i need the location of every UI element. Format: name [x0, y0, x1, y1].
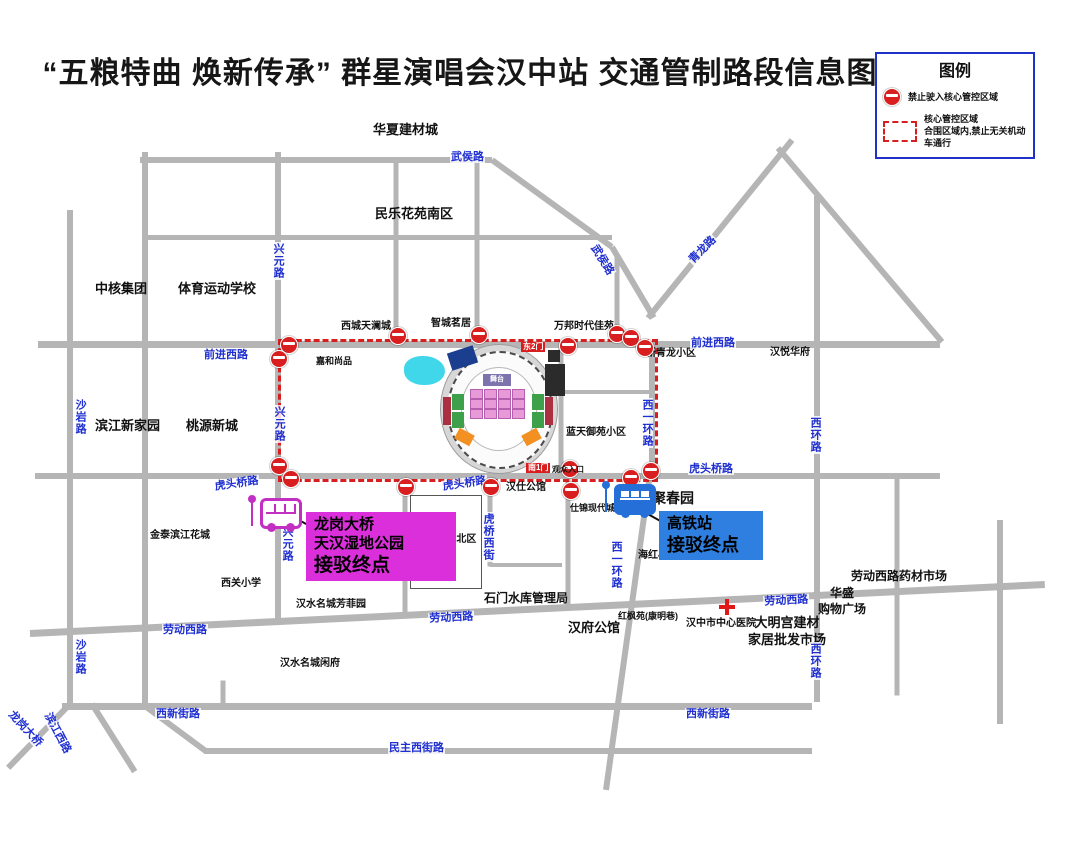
- no-entry-icon: [562, 482, 580, 500]
- bus-windows: [266, 504, 296, 514]
- legend-no-entry-label: 禁止驶入核心管控区域: [908, 91, 998, 103]
- bus-body: [260, 498, 302, 529]
- road-segment: [221, 680, 226, 708]
- road-segment: [67, 210, 73, 706]
- no-entry-icon: [642, 462, 660, 480]
- place-label: 华盛 购物广场: [818, 586, 866, 617]
- road-segment: [394, 162, 399, 344]
- place-label: 中核集团: [95, 281, 147, 298]
- stadium-seating-block: [545, 364, 565, 396]
- road-segment: [776, 146, 945, 344]
- road-label: 劳动西路: [162, 624, 208, 636]
- place-label: 汉府公馆: [568, 620, 620, 637]
- place-label: 嘉和尚品: [316, 356, 352, 368]
- stadium-seating-block: [545, 397, 553, 425]
- road-label: 兴元路: [273, 405, 285, 443]
- gate-south-note: 观众入口: [552, 464, 584, 475]
- no-entry-icon: [636, 339, 654, 357]
- no-entry-icon: [470, 326, 488, 344]
- legend-row-control-zone: 核心管控区域 合围区域内,禁止无关机动车通行: [883, 113, 1027, 149]
- road-label: 西新街路: [685, 708, 731, 720]
- place-label: 劳动西路药材市场: [851, 569, 947, 585]
- bus-stop-pole-icon: [251, 502, 253, 526]
- legend-zone-line2: 合围区域内,禁止无关机动车通行: [924, 126, 1026, 148]
- road-segment: [140, 157, 492, 163]
- stage-label: 舞台: [483, 374, 511, 386]
- bus-stop-pole-icon: [605, 488, 607, 512]
- no-entry-icon: [270, 350, 288, 368]
- no-entry-icon: [883, 88, 901, 106]
- shuttle-terminal-line: 接驳终点: [314, 554, 448, 578]
- wetland-shuttle-bus-icon: [260, 498, 302, 529]
- shuttle-terminal-line: 接驳终点: [667, 534, 755, 557]
- road-label: 前进西路: [203, 349, 249, 361]
- stadium-seating-block: [532, 394, 544, 410]
- road-label: 西一环路: [641, 398, 653, 448]
- stadium-seating-block: [443, 397, 451, 425]
- road-label: 兴元路: [272, 242, 284, 280]
- stadium-seating-block: [470, 399, 483, 409]
- bus-wheel: [640, 509, 649, 518]
- shuttle-terminal-line: 龙岗大桥: [314, 516, 448, 535]
- stadium-seating-block: [512, 399, 525, 409]
- stadium-seating-block: [484, 409, 497, 419]
- road-label: 青龙路: [686, 233, 719, 266]
- stadium-seating-block: [470, 409, 483, 419]
- traffic-control-infographic: “五粮特曲 焕新传承” 群星演唱会汉中站 交通管制路段信息图 图例 禁止驶入核心…: [0, 0, 1080, 841]
- stadium-seating-block: [452, 394, 464, 410]
- place-label: 金泰滨江花城: [150, 529, 210, 542]
- road-label: 西环路: [809, 642, 821, 680]
- stadium-seating-block: [498, 389, 511, 399]
- stadium-seating-block: [498, 399, 511, 409]
- place-label: 石门水库管理局: [484, 591, 568, 607]
- shuttle-terminal-label: 高铁站接驳终点: [659, 511, 763, 560]
- stadium-seating-block: [548, 350, 560, 362]
- stadium-seating-block: [484, 399, 497, 409]
- place-label: 汉仕公馆: [506, 481, 546, 494]
- place-label: 汉水名城芳菲园: [296, 598, 366, 611]
- road-segment: [490, 563, 562, 567]
- road-segment: [646, 138, 795, 320]
- hospital-cross-icon: [719, 599, 735, 615]
- shuttle-terminal-label: 龙岗大桥天汉湿地公园接驳终点: [306, 512, 456, 581]
- no-entry-icon: [482, 478, 500, 496]
- stadium-seating-block: [470, 389, 483, 399]
- page-title: “五粮特曲 焕新传承” 群星演唱会汉中站 交通管制路段信息图: [20, 48, 900, 92]
- legend-zone-label: 核心管控区域 合围区域内,禁止无关机动车通行: [924, 113, 1027, 149]
- legend: 图例 禁止驶入核心管控区域 核心管控区域 合围区域内,禁止无关机动车通行: [875, 52, 1035, 159]
- road-segment: [475, 162, 480, 344]
- road-segment: [89, 702, 137, 773]
- road-segment: [205, 748, 812, 754]
- place-label: 西城天澜城: [341, 320, 391, 333]
- place-label: 智城茗居: [431, 317, 471, 330]
- road-label: 民主西街路: [388, 742, 445, 754]
- bus-body: [614, 484, 656, 515]
- place-label: 汉悦华府: [770, 346, 810, 359]
- place-label: 华夏建材城: [373, 122, 438, 139]
- place-label: 红枫苑(康明巷): [618, 611, 678, 623]
- no-entry-icon: [397, 478, 415, 496]
- hsr-shuttle-bus-icon: [614, 484, 656, 515]
- road-label: 劳动西路: [763, 594, 810, 608]
- stadium-seating-block: [484, 389, 497, 399]
- shuttle-terminal-line: 天汉湿地公园: [314, 535, 448, 554]
- road-label: 前进西路: [690, 337, 736, 349]
- place-label: 仕锦现代城: [570, 503, 615, 515]
- place-label: 聚春园: [652, 489, 694, 507]
- place-label: 滨江新家园: [95, 418, 160, 435]
- stadium-seating-block: [512, 409, 525, 419]
- road-label: 武侯路: [450, 151, 485, 163]
- place-label: 蓝天御苑小区: [566, 426, 626, 439]
- place-label: 体育运动学校: [178, 281, 256, 298]
- bus-windows: [620, 490, 650, 500]
- bus-wheel: [286, 523, 295, 532]
- road-label: 龙岗大桥: [5, 708, 45, 750]
- control-zone-dashed-swatch-icon: [883, 121, 917, 142]
- legend-title: 图例: [883, 57, 1027, 81]
- no-entry-icon: [559, 337, 577, 355]
- road-label: 西新街路: [155, 708, 201, 720]
- place-label: 桃源新城: [186, 418, 238, 435]
- gate-south-label: 南1门: [526, 463, 550, 473]
- bus-wheel: [267, 523, 276, 532]
- place-label: 西关小学: [221, 577, 261, 590]
- stadium-seating-block: [532, 412, 544, 428]
- road-label: 虎桥西街: [482, 512, 494, 562]
- road-label: 西一环路: [610, 540, 622, 590]
- shuttle-terminal-line: 高铁站: [667, 515, 755, 534]
- road-segment: [997, 520, 1003, 724]
- stadium-seating-block: [498, 409, 511, 419]
- road-label: 沙岩路: [74, 398, 86, 436]
- no-entry-icon: [282, 470, 300, 488]
- road-segment: [145, 235, 612, 240]
- gate-east-label: 东2门: [521, 342, 545, 352]
- place-label: 民乐花苑南区: [375, 206, 453, 223]
- legend-row-no-entry: 禁止驶入核心管控区域: [883, 88, 1027, 106]
- road-label: 劳动西路: [428, 611, 475, 625]
- legend-zone-line1: 核心管控区域: [924, 114, 978, 124]
- bus-wheel: [621, 509, 630, 518]
- road-segment: [895, 476, 900, 695]
- place-label: 汉中市中心医院: [686, 617, 756, 630]
- road-label: 沙岩路: [74, 638, 86, 676]
- road-label: 西环路: [809, 416, 821, 454]
- stadium-seating-block: [452, 412, 464, 428]
- stadium-seating-block: [512, 389, 525, 399]
- no-entry-icon: [389, 327, 407, 345]
- place-label: 汉水名城闲府: [280, 657, 340, 670]
- place-label: 万邦时代佳苑: [554, 320, 614, 333]
- lake: [404, 356, 445, 385]
- road-label: 虎头桥路: [688, 463, 734, 475]
